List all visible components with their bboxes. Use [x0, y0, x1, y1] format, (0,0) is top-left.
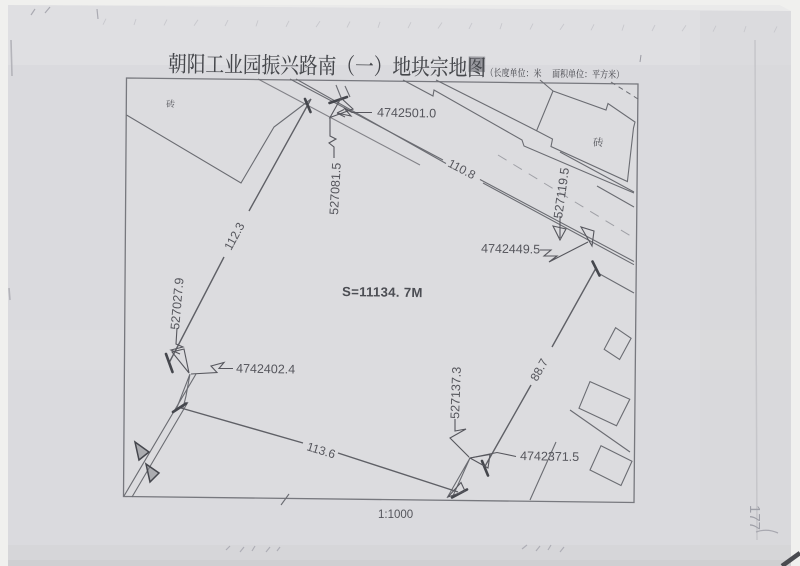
svg-text:4742402.4: 4742402.4 — [236, 362, 295, 377]
svg-text:4742501.0: 4742501.0 — [377, 106, 436, 121]
svg-text:4742449.5: 4742449.5 — [481, 242, 540, 257]
svg-text:527081.5: 527081.5 — [327, 162, 344, 215]
svg-text:4742371.5: 4742371.5 — [520, 449, 579, 464]
svg-text:S=11134. 7M: S=11134. 7M — [342, 284, 423, 300]
svg-text:1:1000: 1:1000 — [378, 509, 413, 521]
svg-text:177: 177 — [746, 505, 763, 530]
svg-text:527137.3: 527137.3 — [448, 366, 464, 419]
